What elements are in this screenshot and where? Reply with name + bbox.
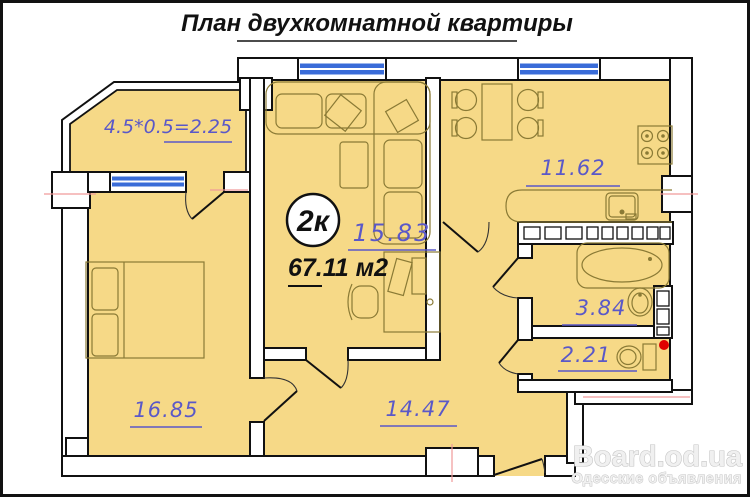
title-block: План двухкомнатной квартиры <box>181 10 573 41</box>
watermark: Board.od.ua Одесские объявления <box>572 441 743 487</box>
balcony-area-label: 4.5*0.5=2.25 <box>104 116 232 138</box>
badge-label: 2к <box>296 205 331 238</box>
watermark-site: Board.od.ua <box>573 441 743 473</box>
bedroom-window <box>110 172 186 192</box>
block-wall-pattern <box>524 227 670 239</box>
bathroom-area-label: 3.84 <box>576 296 627 320</box>
total-area-label: 67.11 м2 <box>288 254 388 282</box>
apartment-type-badge: 2к <box>287 194 339 246</box>
living-area-label: 15.83 <box>353 219 432 247</box>
floor-plan: План двухкомнатной квартиры <box>0 0 750 497</box>
watermark-tagline: Одесские объявления <box>572 471 742 487</box>
bedroom-area-label: 16.85 <box>133 398 198 422</box>
kitchen-area-label: 11.62 <box>540 156 605 180</box>
page-title: План двухкомнатной квартиры <box>181 10 573 37</box>
hallway-area-label: 14.47 <box>385 397 450 421</box>
kitchen-window <box>518 58 600 80</box>
living-window <box>298 58 386 80</box>
floor-plan-page: План двухкомнатной квартиры <box>0 0 750 497</box>
red-marker-dot <box>659 340 669 350</box>
total-area-block: 67.11 м2 <box>288 254 388 286</box>
balcony-door-threshold <box>186 172 224 194</box>
toilet-area-label: 2.21 <box>561 343 612 367</box>
